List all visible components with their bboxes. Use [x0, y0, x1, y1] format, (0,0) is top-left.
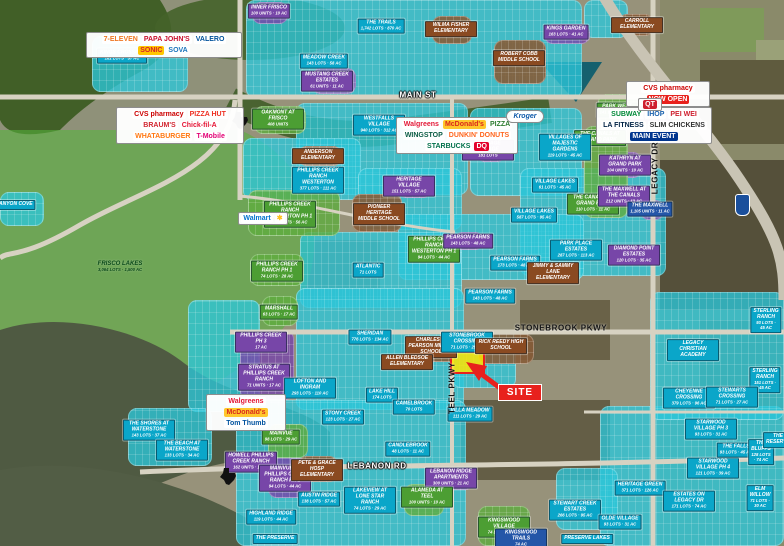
site-marker: SITE — [498, 384, 542, 401]
map-viewport[interactable]: KINGS CROSSING 181 LOTS · 57 AC THE TRAI… — [0, 0, 784, 546]
site-arrow-layer — [0, 0, 784, 546]
